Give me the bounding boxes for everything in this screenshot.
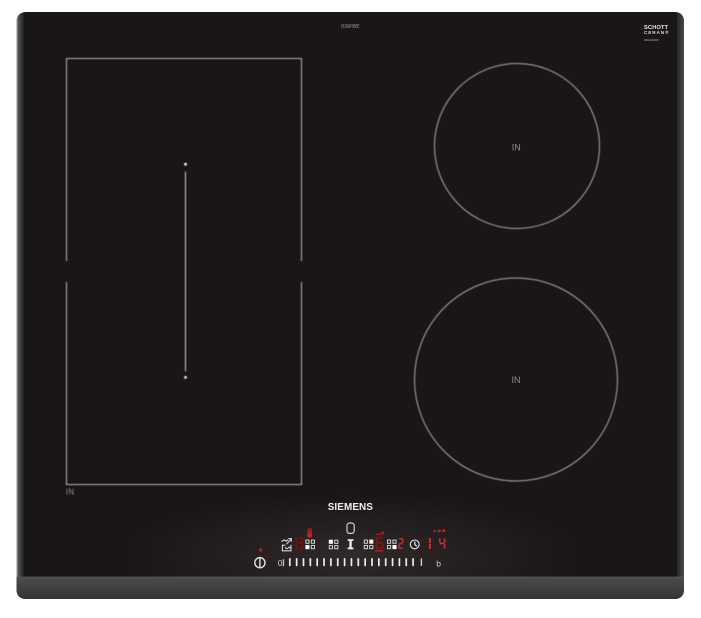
svg-text:MADE IN GERMANY: MADE IN GERMANY (644, 39, 660, 42)
svg-text:CERAN®: CERAN® (644, 29, 669, 35)
svg-text:IN: IN (512, 143, 521, 153)
svg-text:ED651FSB5E: ED651FSB5E (341, 23, 360, 28)
svg-text:IN: IN (66, 487, 75, 496)
svg-text:SIEMENS: SIEMENS (328, 502, 374, 513)
svg-text:0: 0 (278, 559, 283, 568)
svg-text:IN: IN (512, 375, 521, 385)
svg-text:b: b (436, 559, 441, 569)
